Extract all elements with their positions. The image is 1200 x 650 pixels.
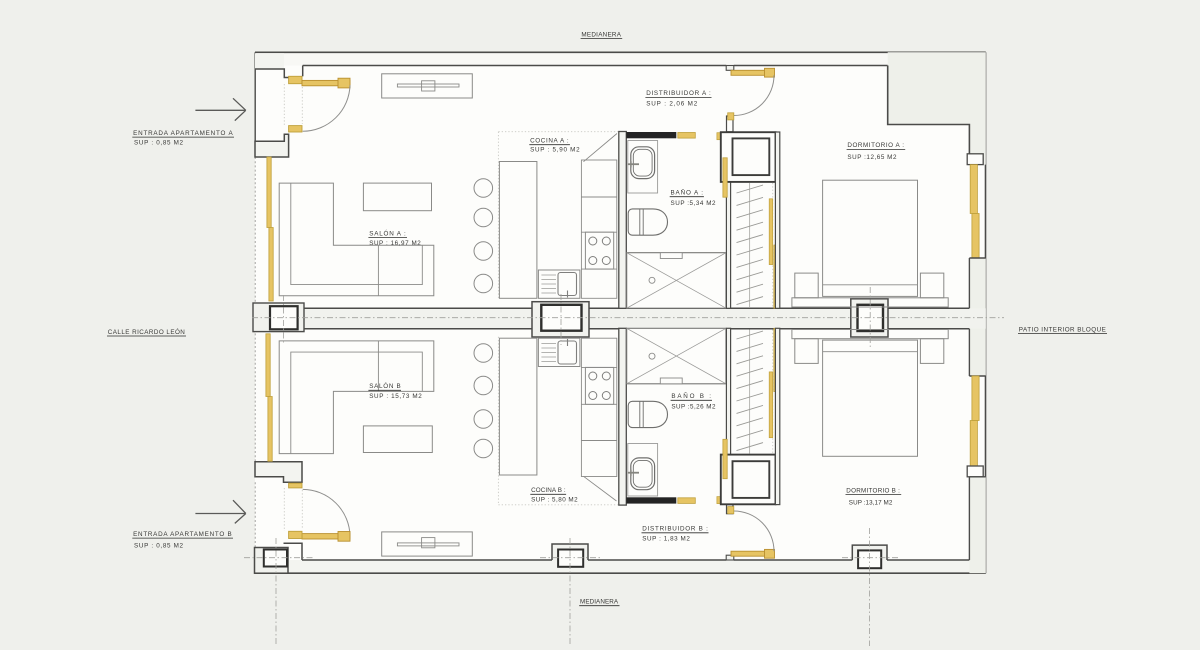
svg-text:COCINA B :: COCINA B : (531, 487, 566, 494)
svg-text:SUP : 15,73 M2: SUP : 15,73 M2 (369, 393, 422, 400)
svg-text:SUP : 16,97 M2: SUP : 16,97 M2 (369, 240, 421, 247)
svg-text:BAÑO A :: BAÑO A : (671, 188, 704, 197)
svg-text:ENTRADA APARTAMENTO A: ENTRADA APARTAMENTO A (133, 130, 233, 137)
svg-text:SUP : 0,85 M2: SUP : 0,85 M2 (134, 140, 184, 147)
svg-text:SUP : 2,06 M2: SUP : 2,06 M2 (646, 100, 698, 107)
svg-text:MEDIANERA: MEDIANERA (580, 599, 619, 606)
svg-text:SUP : 5,90 M2: SUP : 5,90 M2 (530, 146, 580, 153)
svg-text:DISTRIBUIDOR B :: DISTRIBUIDOR B : (642, 526, 708, 533)
svg-text:SUP :5,26 M2: SUP :5,26 M2 (671, 404, 716, 411)
svg-text:CALLE RICARDO LEÓN: CALLE RICARDO LEÓN (108, 327, 186, 336)
svg-text:DISTRIBUIDOR A :: DISTRIBUIDOR A : (646, 90, 711, 97)
svg-text:SUP :5,34 M2: SUP :5,34 M2 (671, 200, 717, 207)
svg-text:SALÓN B: SALÓN B (369, 381, 401, 390)
svg-text:COCINA A :: COCINA A : (530, 138, 569, 145)
svg-text:SUP :13,17 M2: SUP :13,17 M2 (849, 500, 893, 507)
svg-text:MEDIANERA: MEDIANERA (581, 31, 621, 38)
svg-text:ENTRADA APARTAMENTO B: ENTRADA APARTAMENTO B (133, 531, 232, 538)
svg-text:SUP : 5,80 M2: SUP : 5,80 M2 (531, 497, 578, 504)
svg-text:SUP :12,65 M2: SUP :12,65 M2 (847, 154, 897, 161)
svg-text:DORMITORIO A :: DORMITORIO A : (847, 142, 904, 149)
svg-text:PATIO INTERIOR BLOQUE: PATIO INTERIOR BLOQUE (1019, 326, 1107, 333)
svg-text:BAÑO B :: BAÑO B : (671, 391, 711, 400)
svg-text:SUP : 1,83 M2: SUP : 1,83 M2 (642, 536, 690, 543)
svg-text:DORMITORIO B :: DORMITORIO B : (846, 487, 900, 494)
svg-text:SALÓN A :: SALÓN A : (369, 228, 406, 237)
svg-text:SUP : 0,85 M2: SUP : 0,85 M2 (134, 542, 184, 549)
